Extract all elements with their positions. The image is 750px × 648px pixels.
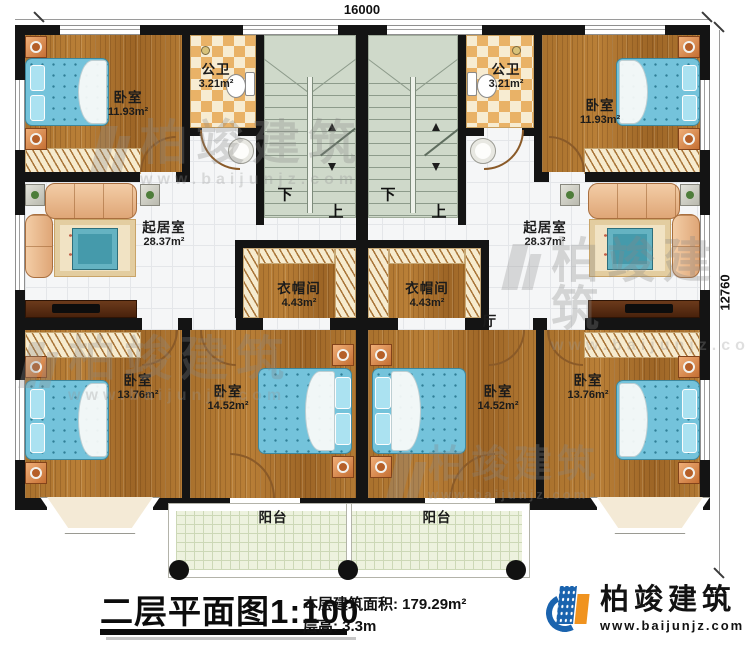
height-value: 3.3m <box>342 618 376 635</box>
dimension-tick-icon <box>33 11 44 22</box>
area-label: 本层建筑面积: <box>303 596 398 613</box>
sofa-chaise <box>672 214 700 278</box>
closet-rack <box>368 248 389 318</box>
plant-icon <box>146 191 154 199</box>
toilet <box>245 72 255 96</box>
bed <box>616 58 700 126</box>
plan-info: 本层建筑面积: 179.29m² 层高: 3.3m <box>303 594 466 638</box>
ceiling-lamp-icon <box>512 46 521 55</box>
stair-label-down-left: 下 <box>277 184 292 205</box>
bay-window-left <box>40 497 160 534</box>
window <box>15 215 25 290</box>
wardrobe <box>584 332 700 358</box>
side-table <box>680 184 700 206</box>
bed <box>616 380 700 460</box>
wall <box>585 172 710 182</box>
window <box>387 25 482 35</box>
window <box>15 380 25 460</box>
stair-label-up-right: 上 <box>431 201 446 222</box>
closet-rack <box>335 248 356 318</box>
nightstand <box>678 36 700 58</box>
tv <box>52 304 100 313</box>
nightstand <box>25 356 47 378</box>
stair-direction-arrow-icon <box>432 123 440 131</box>
sofa-chaise <box>25 214 53 278</box>
bed <box>372 368 466 454</box>
wardrobe <box>584 148 700 174</box>
area-value: 179.29m² <box>402 596 466 613</box>
room-label-bedroom-bottom-right: 卧室13.76m² <box>568 373 609 401</box>
side-table <box>140 184 160 206</box>
sofa <box>588 183 680 219</box>
window <box>15 80 25 150</box>
wall <box>368 240 489 248</box>
closet-rack <box>259 248 335 264</box>
floor-plan-canvas: 卧室11.93m² 公卫3.21m² 公卫3.21m² 卧室11.93m² 起居… <box>0 0 750 648</box>
bed <box>258 368 352 454</box>
nightstand <box>370 456 392 478</box>
room-label-bedroom-bottom-midleft: 卧室14.52m² <box>208 384 249 412</box>
room-label-living-left: 起居室28.37m² <box>142 220 186 248</box>
column <box>506 560 526 580</box>
wall <box>368 318 398 330</box>
room-label-bath-top-right: 公卫3.21m² <box>489 62 524 90</box>
nightstand <box>332 456 354 478</box>
wall <box>458 128 484 136</box>
wall <box>178 318 192 330</box>
room-label-bedroom-bottom-left: 卧室13.76m² <box>118 373 159 401</box>
nightstand <box>678 128 700 150</box>
wall <box>176 172 190 182</box>
wall <box>535 172 549 182</box>
wall <box>182 25 190 182</box>
side-table <box>560 184 580 206</box>
room-label-closet-right: 衣帽间4.43m² <box>405 281 449 309</box>
closet-rack <box>465 248 481 318</box>
plant-icon <box>31 191 39 199</box>
window <box>700 380 710 460</box>
plant-icon <box>566 191 574 199</box>
side-table <box>25 184 45 206</box>
wall <box>235 240 356 248</box>
dimension-line-top <box>15 19 710 20</box>
tv <box>625 304 673 313</box>
logo-website: www.baijunjz.com <box>600 618 744 633</box>
nightstand <box>332 344 354 366</box>
stair-direction-arrow-icon <box>328 123 336 131</box>
wall <box>356 25 368 510</box>
wall <box>522 128 542 136</box>
room-label-balcony-right: 阳台 <box>423 510 452 526</box>
room-label-living-right: 起居室28.37m² <box>523 220 567 248</box>
window <box>585 25 665 35</box>
room-label-bath-top-left: 公卫3.21m² <box>199 62 234 90</box>
wall <box>536 330 544 498</box>
ceiling-lamp-icon <box>201 46 210 55</box>
stair-direction-arrow-icon <box>328 163 336 171</box>
logo-icon <box>544 582 596 636</box>
column <box>169 560 189 580</box>
wall <box>15 172 140 182</box>
wall <box>238 128 264 136</box>
room-label-bedroom-bottom-midright: 卧室14.52m² <box>478 384 519 412</box>
wall <box>15 318 142 330</box>
bed <box>25 380 109 460</box>
nightstand <box>370 344 392 366</box>
stair-label-up-left: 上 <box>328 201 343 222</box>
logo-text: 柏竣建筑 www.baijunjz.com <box>600 586 744 633</box>
wall <box>481 240 489 318</box>
nightstand <box>25 462 47 484</box>
wall <box>534 25 542 182</box>
room-label-bedroom-top-left: 卧室11.93m² <box>108 90 148 118</box>
nightstand <box>25 36 47 58</box>
nightstand <box>25 128 47 150</box>
bed <box>25 58 109 126</box>
wall <box>585 318 710 330</box>
closet-rack <box>243 248 259 318</box>
wall <box>182 330 190 498</box>
wall <box>330 318 368 330</box>
wall <box>236 318 263 330</box>
closet-rack <box>389 248 465 264</box>
bay-window-right <box>590 497 710 534</box>
window <box>60 25 140 35</box>
window <box>700 215 710 290</box>
plant-icon <box>686 191 694 199</box>
stair-label-down-right: 下 <box>380 184 395 205</box>
wall <box>235 240 243 318</box>
column <box>338 560 358 580</box>
wall <box>182 128 202 136</box>
dimension-right-value: 12760 <box>718 270 733 316</box>
dimension-tick-icon <box>701 11 712 22</box>
room-label-closet-left: 衣帽间4.43m² <box>277 281 321 309</box>
nightstand <box>678 356 700 378</box>
window <box>700 80 710 150</box>
sofa <box>45 183 137 219</box>
room-label-bedroom-top-right: 卧室11.93m² <box>580 98 620 126</box>
coffee-table <box>607 228 653 270</box>
room-label-balcony-left: 阳台 <box>259 510 288 526</box>
stair-direction-arrow-icon <box>432 163 440 171</box>
logo-company-name: 柏竣建筑 <box>600 586 744 615</box>
room-label-hall: 厅 <box>483 314 498 330</box>
coffee-table <box>72 228 118 270</box>
toilet <box>467 72 477 96</box>
nightstand <box>678 462 700 484</box>
wall <box>533 318 547 330</box>
dimension-top-value: 16000 <box>327 2 397 17</box>
window <box>243 25 338 35</box>
wardrobe <box>25 148 141 174</box>
wall <box>458 25 466 225</box>
height-label: 层高: <box>303 618 338 635</box>
wall <box>256 25 264 225</box>
wardrobe <box>25 332 141 358</box>
